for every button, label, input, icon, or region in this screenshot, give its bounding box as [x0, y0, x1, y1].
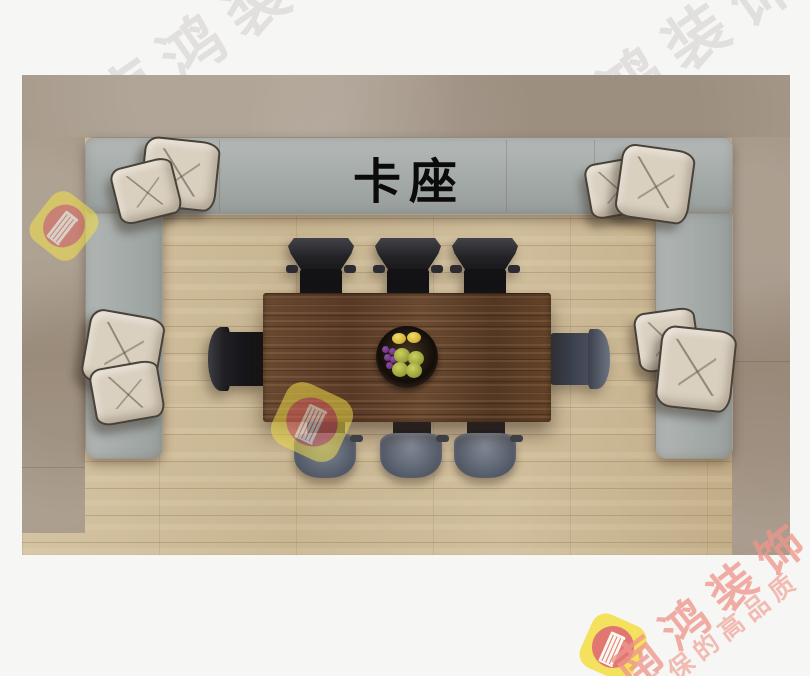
- chair-seat: [387, 269, 429, 296]
- chair-top-3: [452, 238, 518, 296]
- chair-armrest: [350, 435, 363, 442]
- chair-bottom-3: [454, 420, 518, 480]
- chair-seat: [300, 269, 342, 296]
- pillow-left-small: [87, 358, 166, 427]
- chair-armrest: [286, 265, 298, 273]
- chair-armrest: [450, 265, 462, 273]
- stone-tile-seam: [732, 361, 790, 362]
- chair-armrest: [510, 435, 523, 442]
- chair-seat: [464, 269, 506, 296]
- chair-seat: [222, 332, 268, 386]
- chair-left: [208, 327, 268, 391]
- chair-top-2: [375, 238, 441, 296]
- lemon-fruit: [407, 332, 421, 343]
- lemon-fruit: [392, 333, 406, 344]
- chair-armrest: [431, 265, 443, 273]
- chair-bottom-2: [380, 420, 444, 480]
- pillow-right-large: [654, 324, 738, 413]
- green-fruit: [406, 363, 422, 378]
- stone-tile-seam: [22, 467, 85, 468]
- chair-right: [550, 329, 610, 389]
- chair-backrest: [588, 329, 610, 389]
- chair-seat: [380, 433, 442, 478]
- chair-armrest: [344, 265, 356, 273]
- chair-armrest: [373, 265, 385, 273]
- chair-top-1: [288, 238, 354, 296]
- image-canvas: 南鸿装饰 南鸿装饰 卡座: [0, 0, 810, 676]
- chair-armrest: [436, 435, 449, 442]
- stone-border-top: [22, 75, 790, 137]
- chair-seat: [454, 433, 516, 478]
- stone-border-right: [732, 137, 790, 555]
- grape-fruit: [382, 346, 389, 353]
- chair-armrest: [508, 265, 520, 273]
- fruit-plate: [376, 326, 438, 388]
- room-photo: 卡座: [22, 75, 790, 555]
- pillow-top-right-large: [613, 142, 697, 226]
